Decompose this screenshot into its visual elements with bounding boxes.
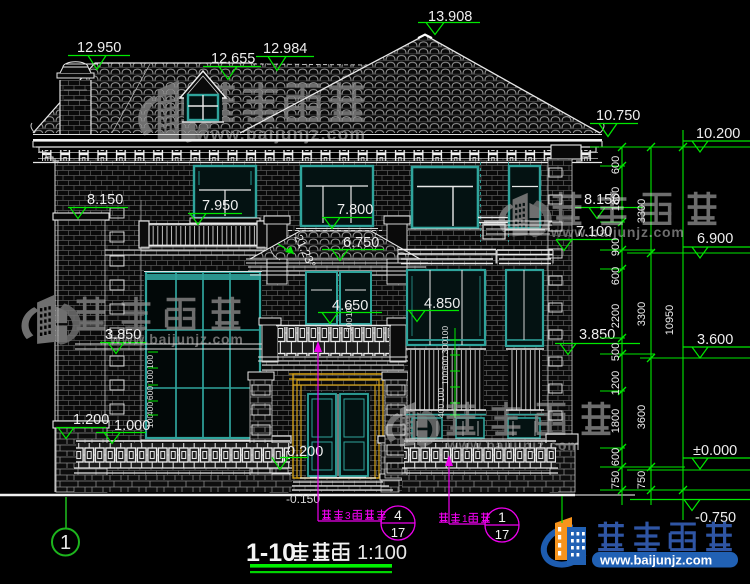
svg-text:10.200: 10.200 (696, 126, 740, 142)
svg-text:17: 17 (391, 525, 405, 540)
svg-text:3600: 3600 (636, 405, 648, 429)
svg-text:100: 100 (145, 414, 155, 428)
svg-text:www.baijunjz.com: www.baijunjz.com (446, 437, 581, 453)
svg-text:2200: 2200 (610, 304, 622, 328)
svg-text:600: 600 (145, 386, 155, 400)
svg-text:900: 900 (610, 238, 622, 256)
svg-text:1: 1 (498, 509, 506, 525)
svg-text:4.850: 4.850 (424, 296, 460, 312)
svg-text:10950: 10950 (664, 305, 676, 336)
svg-text:1:100: 1:100 (357, 542, 407, 564)
svg-text:1200: 1200 (610, 371, 622, 395)
svg-text:3: 3 (345, 511, 351, 522)
svg-text:100: 100 (344, 303, 354, 317)
svg-text:www.baijunjz.com: www.baijunjz.com (599, 553, 712, 568)
svg-text:www.baijunjz.com: www.baijunjz.com (109, 331, 244, 347)
svg-text:1.200: 1.200 (73, 412, 109, 428)
svg-text:100: 100 (145, 370, 155, 384)
svg-text:100: 100 (440, 371, 450, 385)
svg-text:100: 100 (145, 355, 155, 369)
svg-text:12.984: 12.984 (263, 41, 307, 57)
svg-text:1-10: 1-10 (246, 539, 296, 567)
svg-text:7.800: 7.800 (337, 202, 373, 218)
svg-text:6.900: 6.900 (697, 231, 733, 247)
svg-text:1: 1 (60, 532, 71, 554)
svg-text:10.750: 10.750 (596, 108, 640, 124)
svg-text:400: 400 (436, 404, 446, 418)
svg-text:750: 750 (610, 471, 622, 489)
svg-text:-0.750: -0.750 (695, 510, 736, 526)
svg-text:3.850: 3.850 (579, 327, 615, 343)
svg-text:100: 100 (440, 326, 450, 340)
svg-text:600: 600 (440, 356, 450, 370)
svg-text:4: 4 (394, 507, 402, 523)
svg-text:17: 17 (495, 527, 509, 542)
svg-text:6.750: 6.750 (343, 235, 379, 251)
svg-text:300: 300 (344, 318, 354, 332)
svg-text:600: 600 (610, 156, 622, 174)
svg-text:3300: 3300 (636, 302, 648, 326)
svg-text:1: 1 (462, 514, 468, 525)
svg-text:600: 600 (610, 448, 622, 466)
svg-text:-0.150: -0.150 (286, 492, 320, 506)
svg-text:12.655: 12.655 (211, 51, 255, 67)
svg-text:1800: 1800 (610, 409, 622, 433)
svg-text:100: 100 (436, 388, 446, 402)
svg-text:12.950: 12.950 (77, 40, 121, 56)
svg-text:300: 300 (440, 340, 450, 354)
svg-text:8.150: 8.150 (87, 192, 123, 208)
svg-text:500: 500 (610, 343, 622, 361)
svg-text:www.baijunjz.com: www.baijunjz.com (550, 224, 685, 240)
svg-text:3.600: 3.600 (697, 332, 733, 348)
svg-text:13.908: 13.908 (428, 9, 472, 25)
svg-text:600: 600 (610, 267, 622, 285)
svg-text:±0.000: ±0.000 (693, 443, 737, 459)
svg-text:750: 750 (636, 471, 648, 489)
svg-text:7.950: 7.950 (202, 198, 238, 214)
